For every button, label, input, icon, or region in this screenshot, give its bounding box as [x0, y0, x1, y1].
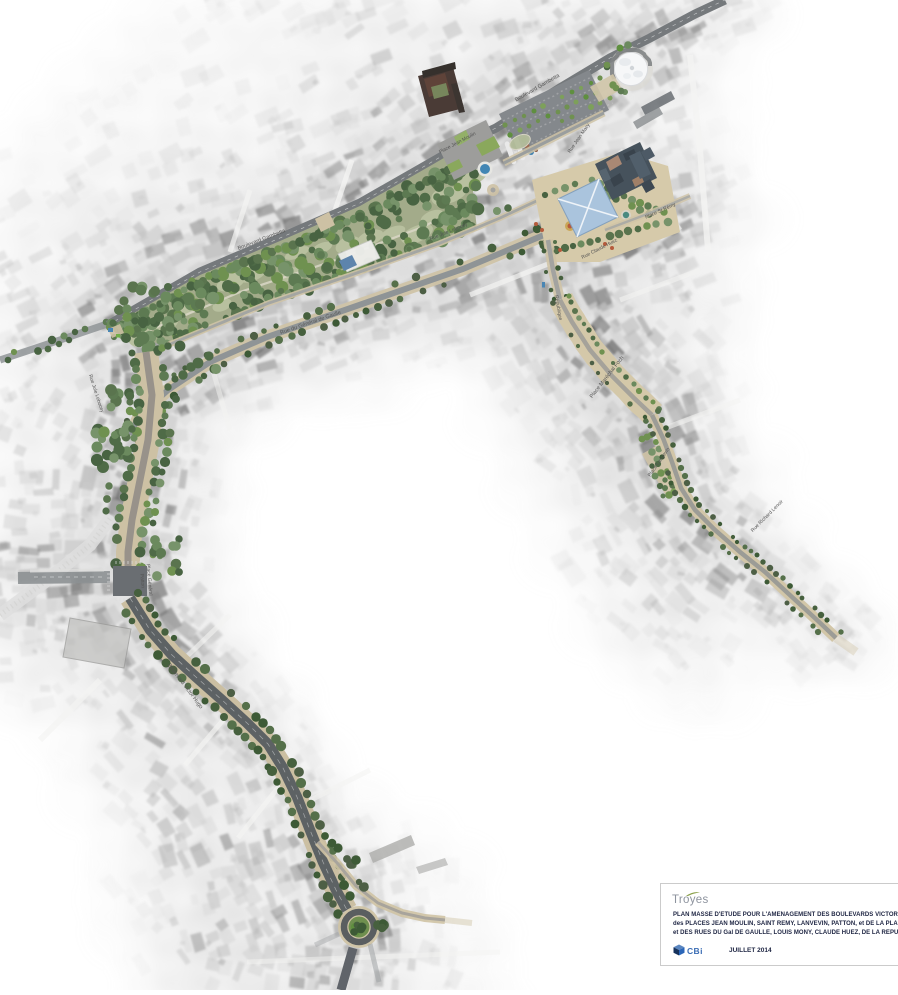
svg-text:Patton: Patton	[138, 573, 145, 588]
